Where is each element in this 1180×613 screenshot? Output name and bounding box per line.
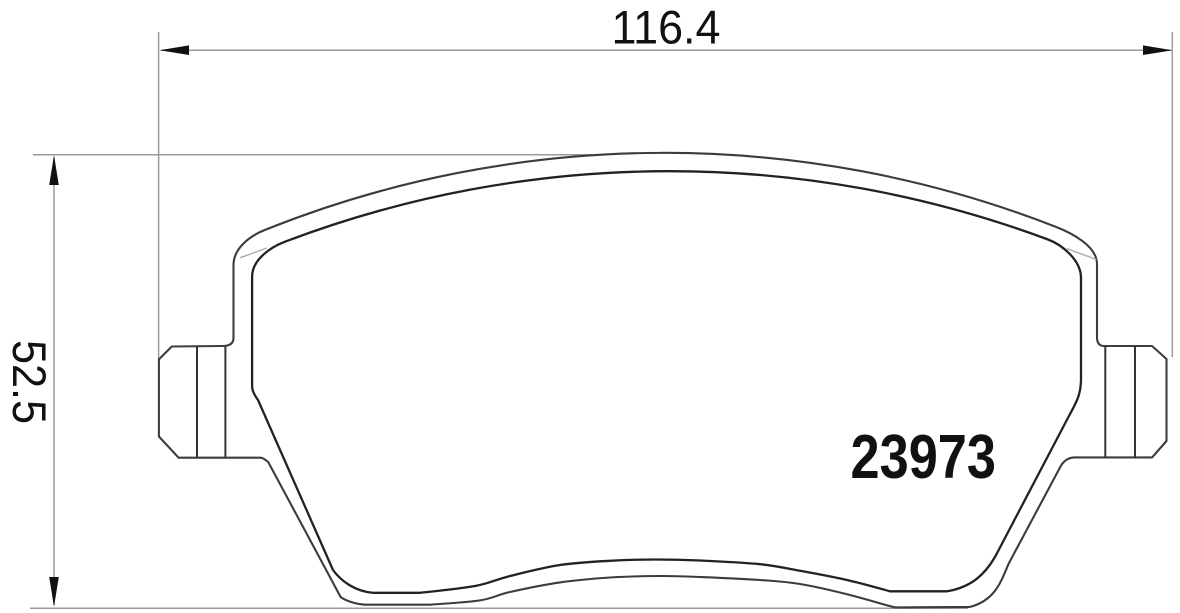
svg-text:116.4: 116.4: [612, 2, 721, 55]
svg-text:52.5: 52.5: [2, 340, 55, 424]
svg-text:23973: 23973: [851, 422, 997, 492]
